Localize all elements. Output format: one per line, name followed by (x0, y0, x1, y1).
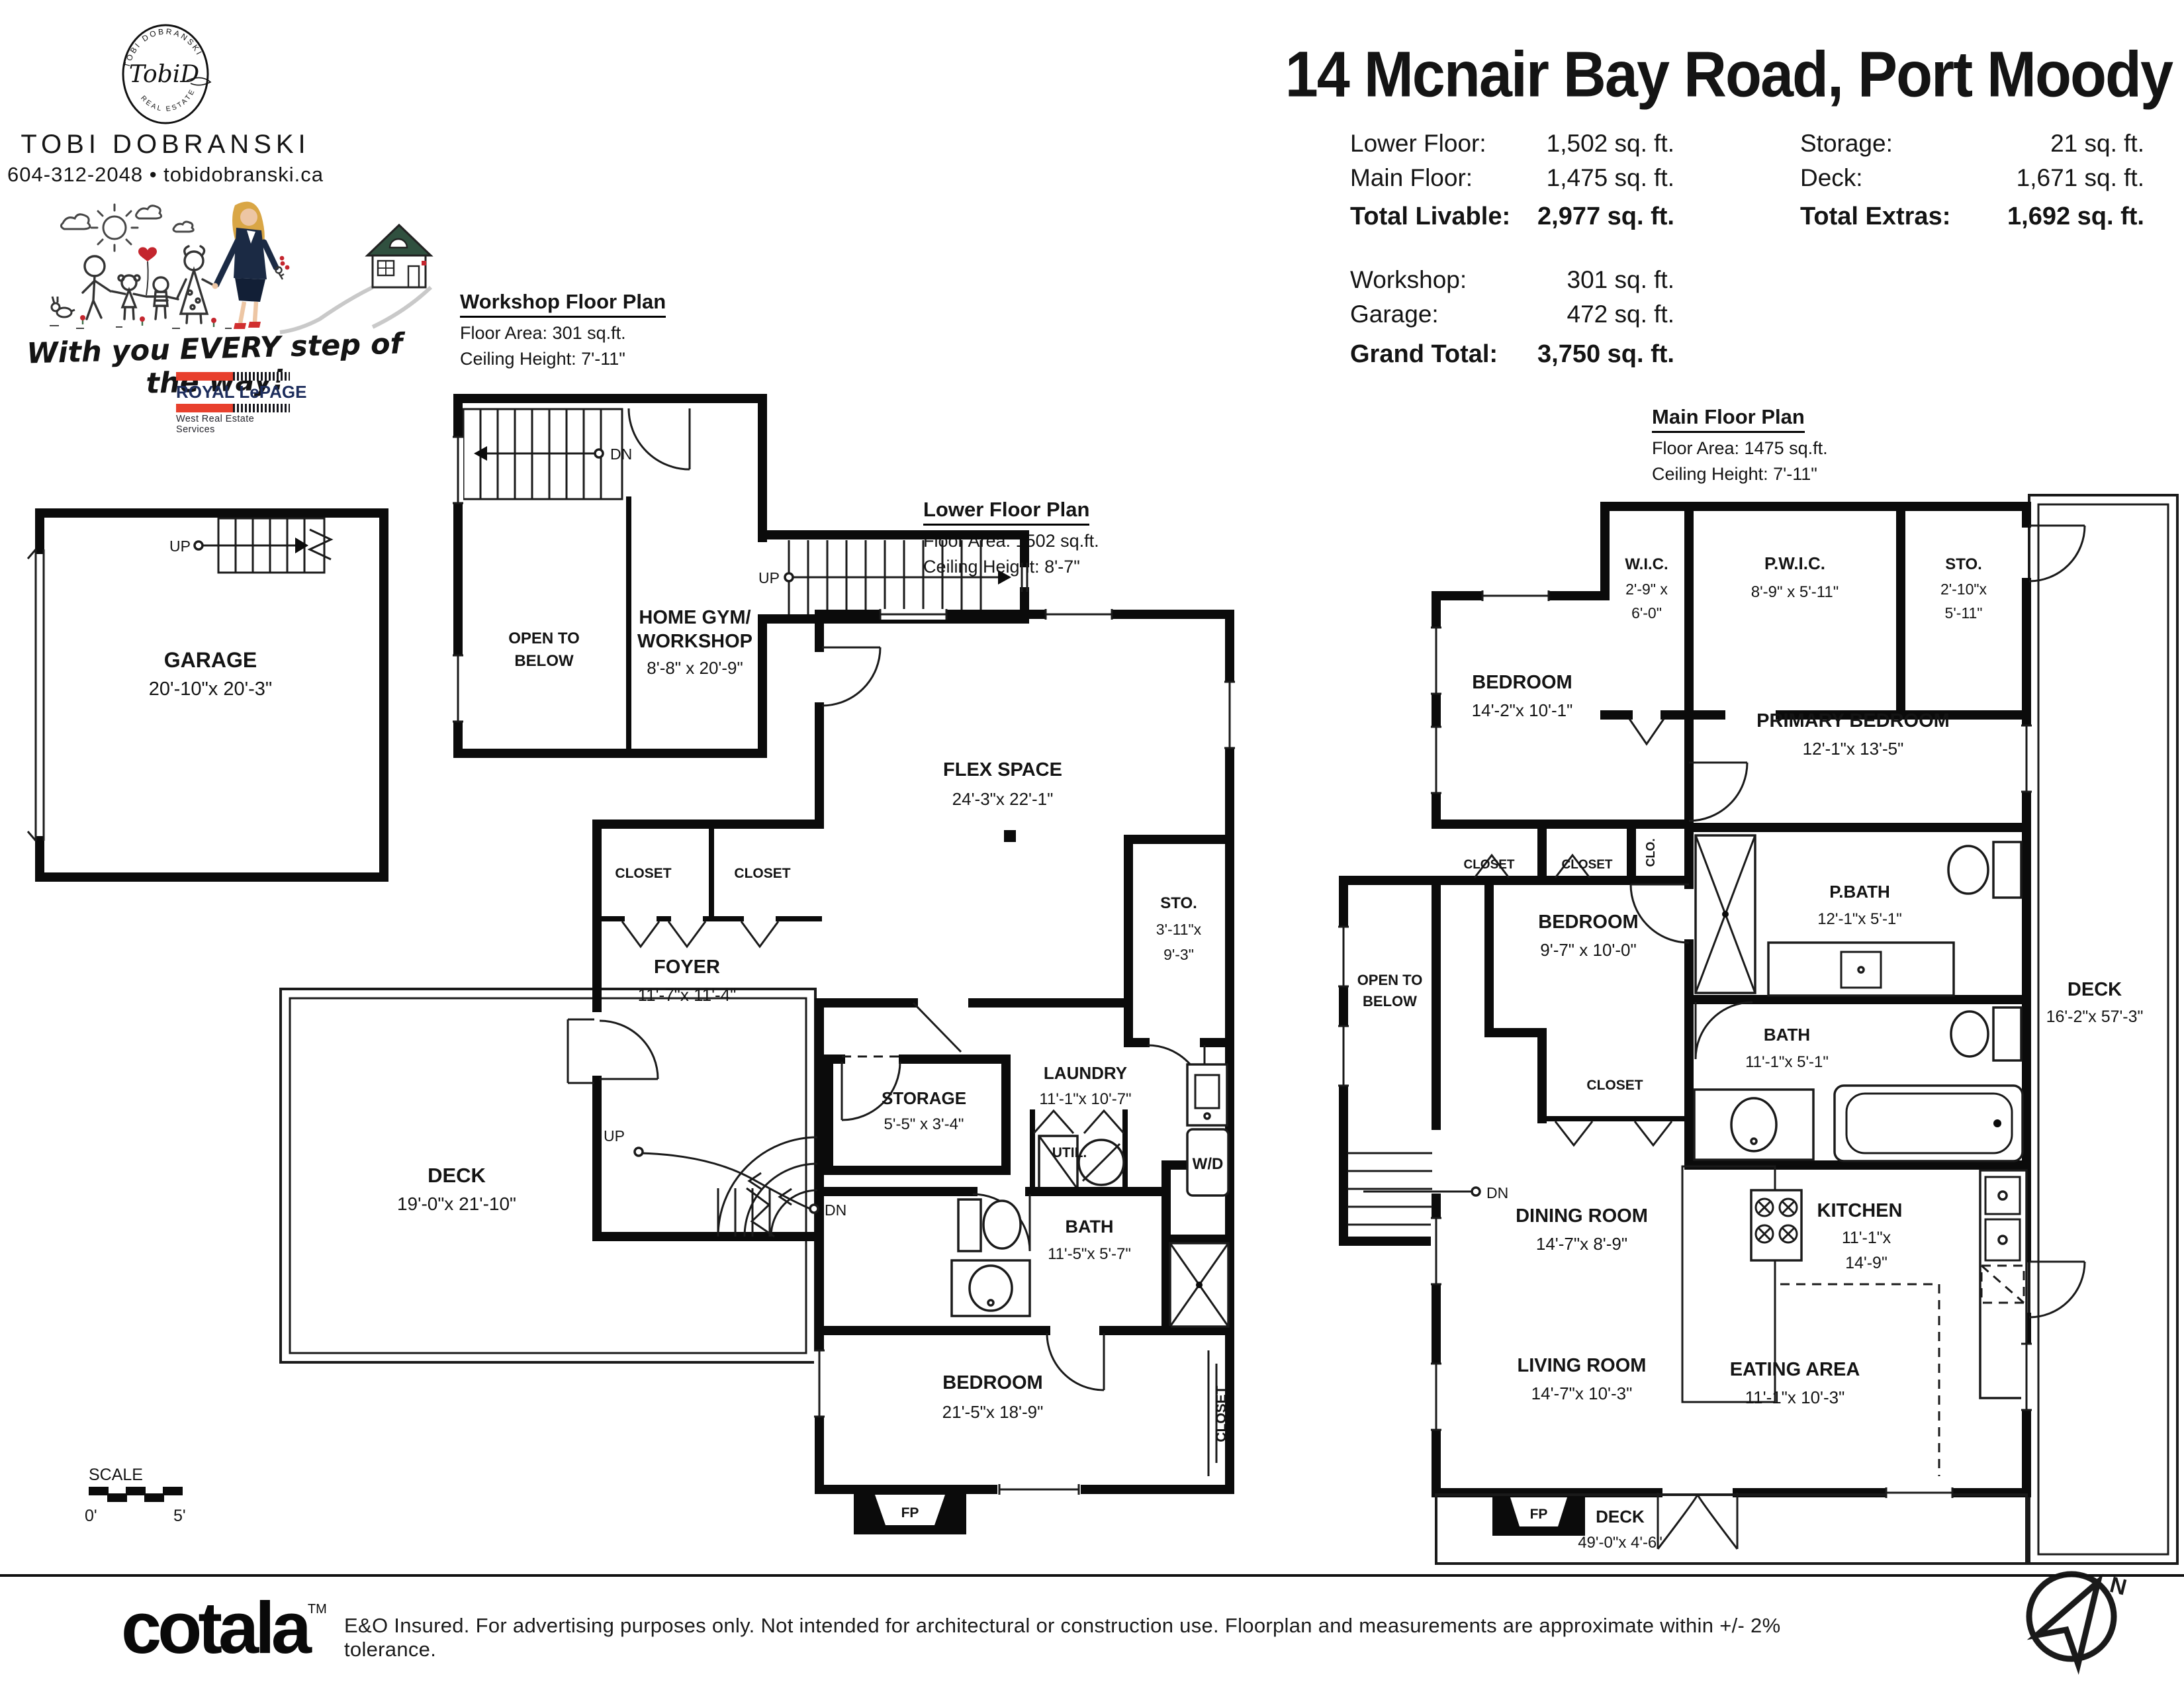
room-dims-bedroom-lower: 21'-5"x 18'-9" (942, 1402, 1044, 1422)
french-doors (1658, 1493, 1737, 1549)
room-label-dining: DINING ROOM (1516, 1205, 1648, 1227)
main-dn-label: DN (1486, 1184, 1508, 1201)
workshop-up-label: UP (758, 569, 780, 586)
lower-stairs: UP DN (604, 1127, 846, 1237)
room-dims-sto-main-2: 5'-11" (1945, 604, 1983, 622)
room-label-kitchen: KITCHEN (1817, 1200, 1903, 1221)
room-label-deck-bottom: DECK (1596, 1507, 1645, 1526)
garage-up-label: UP (169, 538, 191, 555)
room-label-wd: W/D (1193, 1155, 1224, 1173)
room-label-closet-b: CLOSET (1561, 858, 1612, 872)
room-dims-wic-1: 2'-9" x (1625, 581, 1668, 598)
lower-bath: BATH 11'-5"x 5'-7" W/D (819, 1129, 1230, 1331)
room-dims-eating: 11'-1"x 10'-3" (1745, 1387, 1845, 1407)
main-floor-plan: DECK 16'-2"x 57'-3" W.I.C. 2'-9" x 6'-0"… (1338, 495, 2177, 1564)
room-dims-storage: 5'-5" x 3'-4" (884, 1115, 964, 1133)
room-label-gym-1: HOME GYM/ (639, 607, 751, 628)
room-label-storage: STORAGE (882, 1088, 966, 1108)
room-label-deck-right: DECK (2068, 979, 2122, 1000)
floorplans-svg: UP GARAGE 20'-10"x 20'-3" DN UP (0, 0, 2184, 1688)
room-label-primary: PRIMARY BEDROOM (1756, 710, 1950, 731)
lower-dn-label: DN (825, 1201, 846, 1219)
room-label-closet-2: CLOSET (734, 866, 790, 881)
room-dims-sto-main-1: 2'-10"x (1940, 581, 1987, 598)
room-dims-deck-right: 16'-2"x 57'-3" (2046, 1008, 2144, 1026)
room-label-bath-main: BATH (1764, 1025, 1810, 1045)
room-label-open-main-2: BELOW (1363, 993, 1417, 1009)
room-dims-pwic: 8'-9" x 5'-11" (1751, 583, 1839, 601)
room-dims-garage: 20'-10"x 20'-3" (149, 679, 272, 700)
room-label-pwic: P.W.I.C. (1764, 553, 1825, 573)
room-dims-dining: 14'-7"x 8'-9" (1536, 1234, 1627, 1254)
room-label-util: UTIL. (1052, 1145, 1087, 1160)
room-dims-living: 14'-7"x 10'-3" (1531, 1383, 1633, 1403)
primary-bath: P.BATH 12'-1"x 5'-1" (1689, 827, 2026, 1000)
room-dims-sto-lower-2: 9'-3" (1163, 946, 1194, 963)
room-label-bath-lower: BATH (1066, 1217, 1114, 1237)
room-label-bedroom-lower: BEDROOM (942, 1372, 1042, 1393)
room-label-sto-lower: STO. (1160, 894, 1197, 912)
room-label-living: LIVING ROOM (1518, 1355, 1647, 1376)
cotala-tm: TM (308, 1602, 327, 1617)
room-dims-bath-lower: 11'-5"x 5'-7" (1048, 1245, 1131, 1263)
room-label-closet-mid: CLOSET (1586, 1078, 1643, 1093)
scale-label: SCALE (89, 1466, 143, 1484)
room-dims-deck-lower: 19'-0"x 21'-10" (397, 1194, 516, 1214)
room-label-foyer: FOYER (654, 957, 720, 978)
fp-label-main: FP (1530, 1507, 1548, 1522)
main-open-below: OPEN TO BELOW DN (1338, 880, 1508, 1493)
room-dims-kitchen-1: 11'-1"x (1842, 1229, 1891, 1247)
room-dims-bedroom1: 14'-2"x 10'-1" (1472, 700, 1573, 720)
scale-bar: SCALE 0' 5' (85, 1466, 186, 1525)
scale-five: 5' (173, 1507, 186, 1525)
room-dims-gym: 8'-8" x 20'-9" (647, 658, 743, 678)
room-dims-kitchen-2: 14'-9" (1845, 1254, 1888, 1272)
room-label-closet-bedroom: CLOSET (1214, 1385, 1229, 1442)
lower-bedroom: BEDROOM 21'-5"x 18'-9" CLOSET (819, 1331, 1229, 1476)
room-dims-laundry: 11'-1"x 10'-7" (1039, 1090, 1131, 1108)
lower-fireplace: FP (854, 1485, 966, 1534)
room-label-flex: FLEX SPACE (943, 759, 1062, 780)
workshop-plan: DN UP OPEN TO BELOW HOME GYM/ WORKSHOP 8… (453, 399, 1027, 753)
room-dims-foyer: 11'-7"x 11'-4" (638, 985, 737, 1005)
room-label-bedroom2: BEDROOM (1538, 912, 1638, 933)
room-label-closet-1: CLOSET (615, 866, 671, 881)
room-label-clo: CLO. (1644, 839, 1657, 867)
foyer-wing: CLOSET CLOSET FOYER 11'-7"x 11'-4" (568, 824, 819, 1237)
room-dims-sto-lower-1: 3'-11"x (1156, 921, 1202, 938)
room-label-wic: W.I.C. (1625, 555, 1668, 573)
room-label-sto-main: STO. (1945, 555, 1982, 573)
util-closet: UTIL. (1032, 1111, 1125, 1192)
room-label-open-below-2: BELOW (514, 652, 574, 670)
room-dims-bath-main: 11'-1"x 5'-1" (1745, 1053, 1829, 1071)
storage-room: STORAGE 5'-5" x 3'-4" (829, 1056, 1006, 1170)
room-label-gym-2: WORKSHOP (637, 631, 752, 652)
room-label-bedroom1: BEDROOM (1472, 672, 1572, 693)
room-label-closet-a: CLOSET (1463, 858, 1514, 872)
workshop-dn-label: DN (610, 445, 632, 463)
room-label-eating: EATING AREA (1730, 1359, 1860, 1380)
washer-fixture (1187, 1064, 1227, 1125)
room-label-open-main-1: OPEN TO (1357, 972, 1423, 988)
room-dims-deck-bottom: 49'-0"x 4'-6" (1578, 1534, 1662, 1552)
room-dims-wic-2: 6'-0" (1631, 604, 1662, 622)
room-dims-primary: 12'-1"x 13'-5" (1803, 739, 1904, 759)
garage-plan: UP GARAGE 20'-10"x 20'-3" (28, 513, 384, 877)
fp-label-lower: FP (901, 1505, 919, 1521)
compass-icon: N (2029, 1572, 2129, 1664)
room-label-garage: GARAGE (164, 648, 257, 672)
room-dims-pbath: 12'-1"x 5'-1" (1817, 910, 1902, 928)
main-bath: BATH 11'-1"x 5'-1" (1689, 1002, 2026, 1165)
room-label-pbath: P.BATH (1829, 882, 1890, 902)
scale-zero: 0' (85, 1507, 97, 1525)
floorplan-sheet: TOBI DOBRANSKI REAL ESTATE TobiD TOBI DO… (0, 0, 2184, 1688)
room-label-deck-lower: DECK (428, 1164, 486, 1187)
room-dims-flex: 24'-3"x 22'-1" (952, 789, 1054, 809)
footer-divider (0, 1574, 2184, 1577)
room-label-open-below-1: OPEN TO (508, 630, 580, 647)
room-label-laundry: LAUNDRY (1044, 1063, 1127, 1083)
footer-disclaimer: E&O Insured. For advertising purposes on… (344, 1614, 1866, 1662)
cotala-logo-text: cotala (121, 1587, 308, 1669)
lower-windows (814, 609, 1235, 1495)
lower-up-label: UP (604, 1127, 625, 1145)
cotala-logo: cotalaTM (121, 1586, 327, 1670)
room-dims-bedroom2: 9'-7" x 10'-0" (1540, 940, 1636, 960)
